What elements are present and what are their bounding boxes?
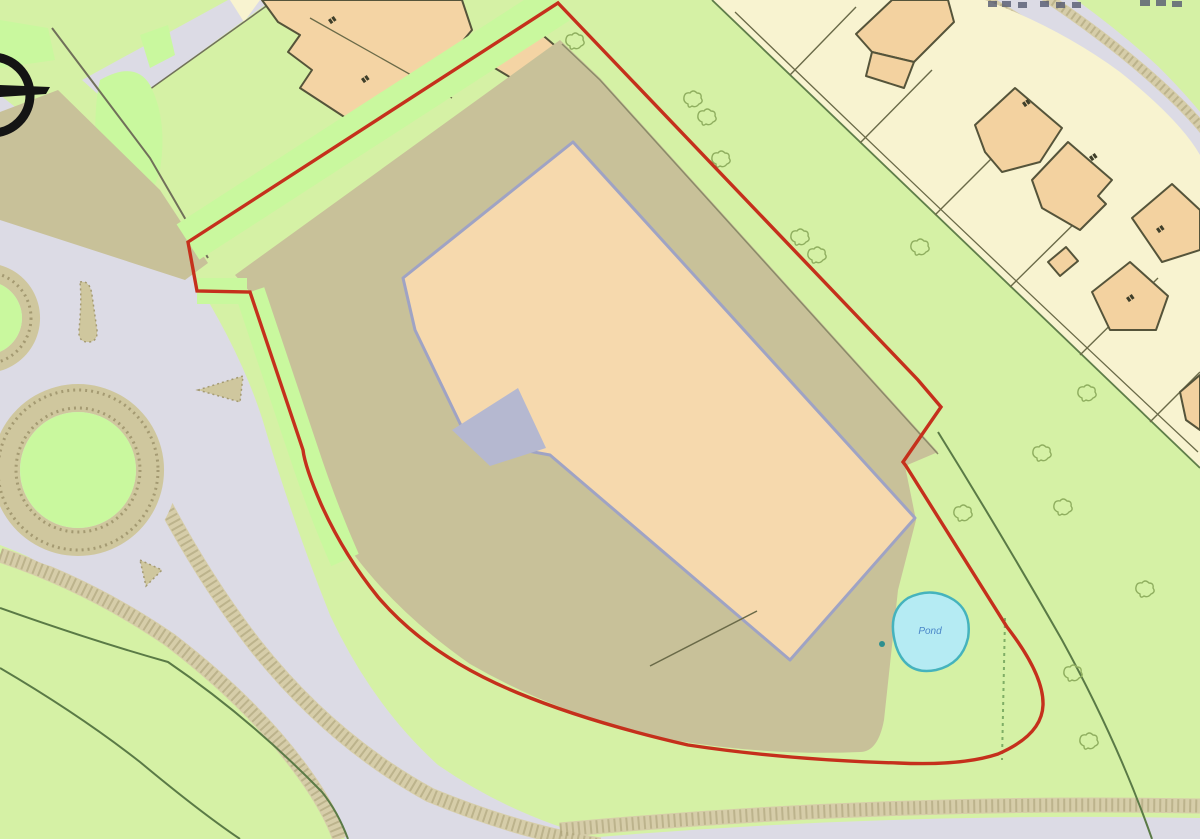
roundabout-centre xyxy=(20,412,136,528)
cut-off-text-fragment xyxy=(1040,1,1049,7)
cut-off-text-fragment xyxy=(1072,2,1081,8)
cut-off-text-fragment xyxy=(1018,2,1027,8)
site-plan-map: Pond xyxy=(0,0,1200,839)
cut-off-text-fragment xyxy=(1056,2,1065,8)
cut-off-text-fragment xyxy=(1140,0,1150,6)
cut-off-text-fragment xyxy=(988,1,997,7)
map-canvas: Pond xyxy=(0,0,1200,839)
pond-label: Pond xyxy=(918,626,942,637)
cut-off-text-fragment xyxy=(1156,0,1166,6)
pond-inlet-mark xyxy=(879,641,885,647)
cut-off-text-fragment xyxy=(1002,1,1011,7)
cut-off-text-fragment xyxy=(1172,1,1182,7)
